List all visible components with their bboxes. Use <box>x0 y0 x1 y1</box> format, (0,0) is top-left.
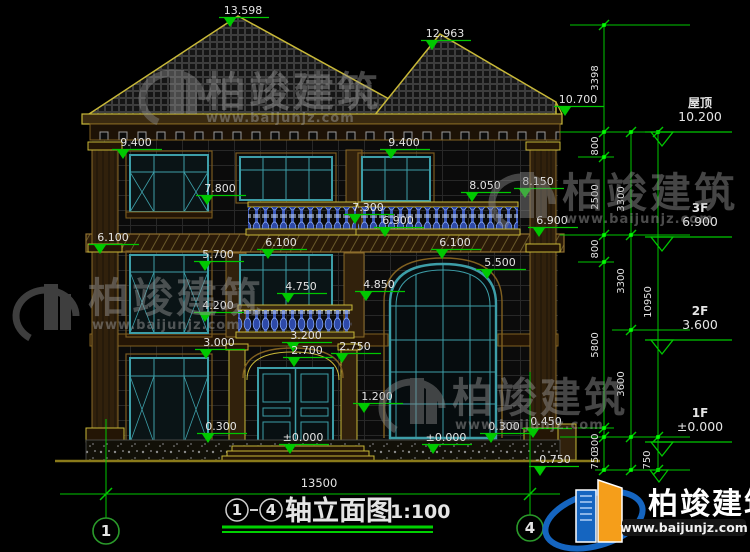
axis-bubble-1: 1 <box>93 518 119 544</box>
elevation-label: 2.700 <box>291 344 323 357</box>
chain-dim-label: 300 <box>590 433 601 452</box>
window-3f-center <box>236 153 336 203</box>
sill-3f-left <box>126 212 212 218</box>
elevation-marker-triangle <box>534 467 546 476</box>
elevation-label: 7.800 <box>204 182 236 195</box>
watermark-url: www.baijunjz.com <box>206 111 355 126</box>
elevation-label: 10.700 <box>559 93 598 106</box>
elevation-label: 4.750 <box>285 280 317 293</box>
mid-cornice <box>86 234 564 252</box>
elevation-label: 9.400 <box>388 136 420 149</box>
elevation-label: 3.000 <box>203 336 235 349</box>
secondary-roof <box>374 34 556 116</box>
watermark-brand: 柏竣建筑 <box>88 274 264 322</box>
balcony-3f-left <box>246 202 358 235</box>
elevation-label: 2.750 <box>339 340 371 353</box>
chain-dim-label: 5800 <box>590 332 601 357</box>
chain-dim-label: 3398 <box>590 65 601 90</box>
entrance-steps <box>222 446 374 461</box>
chain-dim-label: 750 <box>590 450 601 469</box>
elevation-label: 5.500 <box>484 256 516 269</box>
chain-grip <box>602 233 606 237</box>
dentil-band <box>90 124 560 140</box>
chain-grip <box>602 468 606 472</box>
chain-grip <box>629 468 633 472</box>
chain-grip <box>629 233 633 237</box>
logo-building-blue <box>576 490 596 542</box>
floor-elevation: ±0.000 <box>677 419 723 434</box>
title-text: 轴立面图 <box>285 495 393 527</box>
cad-elevation-drawing: 1 4 13500 13.59812.96310.7009.4009.4007.… <box>0 0 750 552</box>
window-3f-left <box>126 151 212 216</box>
chain-dim-label: 800 <box>590 136 601 155</box>
axis-bubble-1-label: 1 <box>101 522 111 540</box>
watermark-url: www.baijunjz.com <box>455 418 604 433</box>
elevation-label: 13.598 <box>224 4 263 17</box>
drawing-canvas: 1 4 13500 13.59812.96310.7009.4009.4007.… <box>0 0 750 552</box>
chain-grip <box>602 130 606 134</box>
title-scale: 1:100 <box>390 501 450 523</box>
elevation-label: 6.100 <box>439 236 471 249</box>
watermark-brand: 柏竣建筑 <box>452 374 628 422</box>
floor-marker-triangle <box>651 237 673 251</box>
title-axis-to: 4 <box>266 501 276 519</box>
chain-grip <box>602 260 606 264</box>
drawing-title: 1 4 轴立面图 1:100 <box>222 495 450 532</box>
title-axis-from: 1 <box>232 501 242 519</box>
chain-dim-label: 10950 <box>643 286 654 318</box>
watermark-url: www.baijunjz.com <box>92 318 241 333</box>
overall-width-dim: 13500 <box>301 476 338 490</box>
chain-grip <box>602 435 606 439</box>
elevation-label: 7.300 <box>352 201 384 214</box>
brand-logo: 柏竣建筑 www.baijunjz.com <box>539 480 750 552</box>
chain-grip <box>629 328 633 332</box>
chain-grip <box>629 435 633 439</box>
elevation-label: 0.300 <box>205 420 237 433</box>
window-3f-right <box>358 153 434 204</box>
chain-grip <box>656 435 660 439</box>
floor-marker-triangle <box>651 132 673 146</box>
logo-url-text: www.baijunjz.com <box>620 520 748 535</box>
elevation-label: 12.963 <box>426 27 465 40</box>
elevation-label: 3.200 <box>290 329 322 342</box>
elevation-label: 6.100 <box>97 231 129 244</box>
floor-elevation: 10.200 <box>678 109 722 124</box>
elevation-label: -0.750 <box>535 453 570 466</box>
elevation-label: 6.900 <box>382 214 414 227</box>
floor-label: 1F <box>692 406 709 420</box>
chain-dim-label: 800 <box>590 239 601 258</box>
logo-brand-text: 柏竣建筑 <box>648 487 750 522</box>
chain-dim-label: 3300 <box>616 268 627 293</box>
floor-label: 2F <box>692 304 709 318</box>
chain-dim-label: 750 <box>642 450 653 469</box>
floor-elevation: 3.600 <box>682 317 718 332</box>
chain-grip <box>602 23 606 27</box>
watermark-left: 柏竣建筑 www.baijunjz.com <box>16 274 264 338</box>
elevation-label: 4.850 <box>363 278 395 291</box>
floor-marker-triangle <box>651 442 673 456</box>
axis-bubble-4-label: 4 <box>525 519 535 537</box>
axis-bubble-4: 4 <box>517 515 543 541</box>
elevation-label: 5.700 <box>202 248 234 261</box>
elevation-label: 9.400 <box>120 136 152 149</box>
watermark-brand: 柏竣建筑 <box>205 68 381 116</box>
watermark-logo-icon <box>16 284 76 338</box>
elevation-label: ±0.000 <box>283 431 324 444</box>
elevation-label: 6.100 <box>265 236 297 249</box>
logo-building-orange <box>598 480 622 542</box>
chain-grip <box>602 155 606 159</box>
floor-marker-triangle <box>651 340 673 354</box>
chain-grip <box>629 130 633 134</box>
floor-label: 屋顶 <box>688 96 712 110</box>
watermark-url: www.baijunjz.com <box>565 212 714 227</box>
watermark-brand: 柏竣建筑 <box>562 169 738 217</box>
